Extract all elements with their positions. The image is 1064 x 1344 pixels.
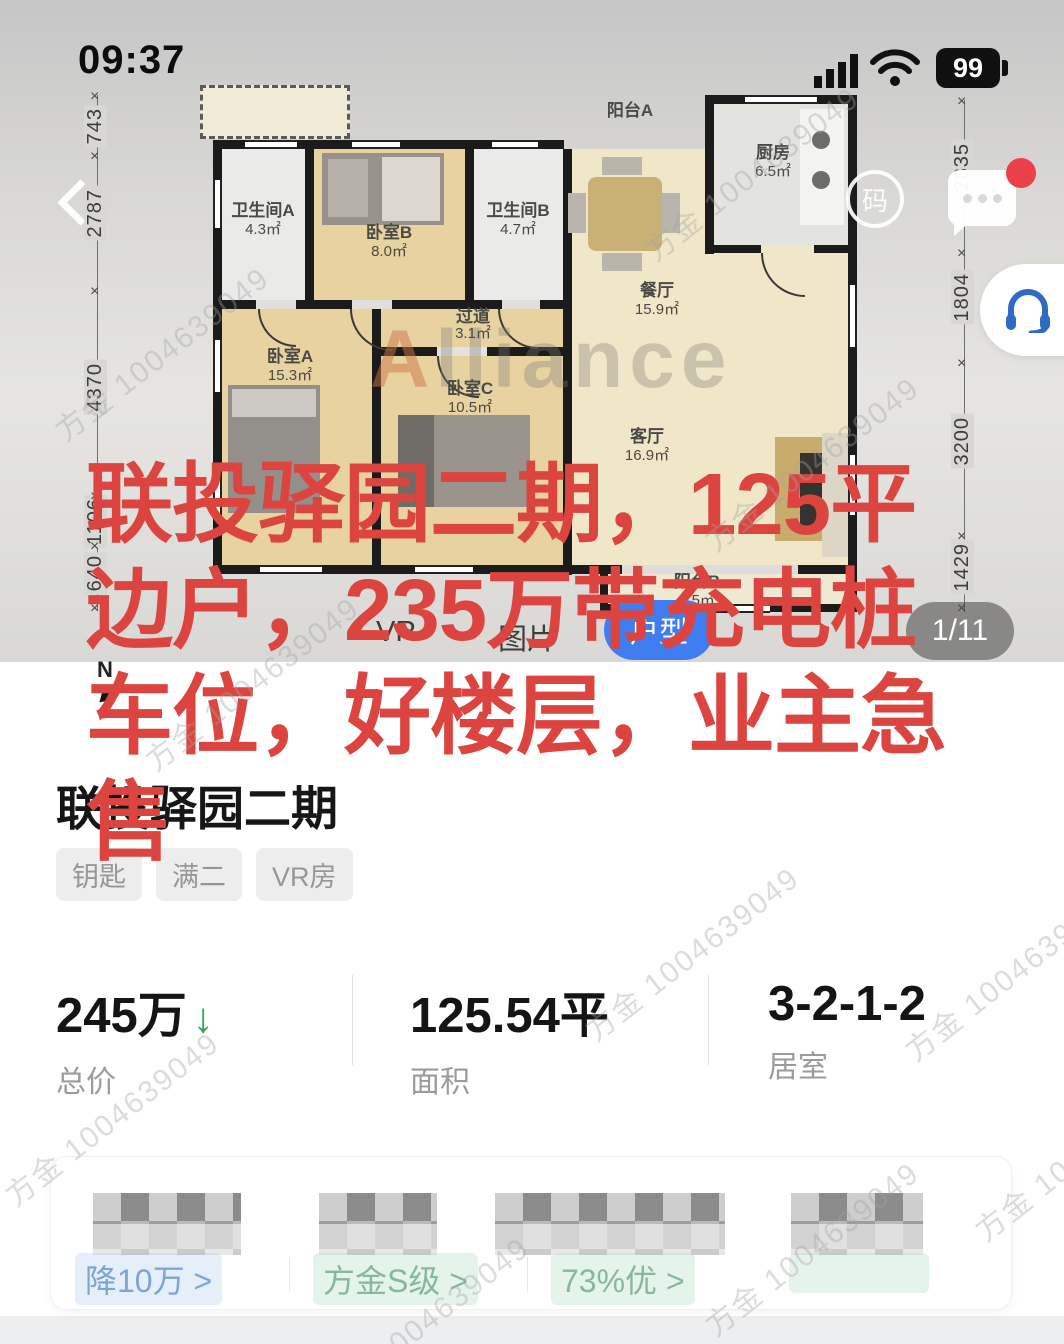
dimension-value: 1804 bbox=[951, 270, 974, 325]
room-label-bedroom-b: 卧室B8.0㎡ bbox=[334, 223, 444, 260]
promo-blank bbox=[789, 1253, 929, 1293]
wall bbox=[222, 300, 256, 309]
stat-divider bbox=[708, 975, 709, 1065]
window-marker bbox=[213, 340, 222, 392]
room-balcony-a bbox=[200, 85, 350, 139]
price-down-arrow: ↓ bbox=[193, 994, 214, 1041]
dimension-tick: × bbox=[957, 355, 966, 373]
room-label-hallway: 过道3.1㎡ bbox=[418, 308, 528, 342]
furniture-dining-table bbox=[588, 177, 662, 251]
dimension-value: 4370 bbox=[84, 360, 107, 415]
room-label-bedroom-a: 卧室A15.3㎡ bbox=[235, 347, 345, 384]
dimension-tick: × bbox=[957, 245, 966, 263]
wall bbox=[296, 300, 352, 309]
wall bbox=[705, 245, 761, 253]
promo-price-cut[interactable]: 降10万 > bbox=[75, 1253, 222, 1305]
furniture-chair bbox=[602, 253, 642, 271]
promo-grade[interactable]: 方金S级 > bbox=[313, 1253, 478, 1305]
redacted-mosaic bbox=[495, 1193, 725, 1255]
screen: 09:37 99 Alliance 阳台A 厨房6.5㎡ 卫生间A4.3㎡ 卧室… bbox=[0, 0, 1064, 1344]
promo-divider bbox=[289, 1257, 290, 1291]
stat-layout: 3-2-1-2 居室 bbox=[768, 976, 926, 1086]
furniture-pillow bbox=[232, 389, 316, 417]
furniture-bed-sheet bbox=[382, 157, 440, 221]
room-label-dining: 餐厅15.9㎡ bbox=[602, 281, 712, 318]
chat-bubble-icon[interactable] bbox=[948, 170, 1016, 226]
redacted-mosaic bbox=[319, 1193, 437, 1255]
status-time: 09:37 bbox=[78, 38, 185, 83]
furniture-pillow bbox=[328, 159, 368, 217]
window-marker bbox=[492, 140, 538, 149]
redacted-mosaic bbox=[791, 1193, 923, 1255]
cellular-signal-icon bbox=[814, 52, 862, 88]
room-label-bedroom-c: 卧室C10.5㎡ bbox=[415, 379, 525, 416]
marketing-overlay-text: 联投驿园二期，125平 边户，235万带充电桩 车位，好楼层，业主急 售 bbox=[86, 452, 1016, 876]
room-label-balcony-a: 阳台A bbox=[575, 101, 685, 121]
room-label-bath-a: 卫生间A4.3㎡ bbox=[210, 201, 316, 238]
redacted-mosaic bbox=[93, 1193, 241, 1255]
customer-service-button[interactable] bbox=[980, 264, 1064, 356]
dimension-tick: × bbox=[957, 93, 966, 111]
promo-card[interactable]: 降10万 > 方金S级 > 73%优 > bbox=[50, 1156, 1012, 1310]
headset-icon bbox=[1002, 287, 1054, 333]
chat-bubble-tail bbox=[954, 222, 970, 236]
dimension-tick: × bbox=[90, 148, 99, 166]
promo-divider bbox=[527, 1257, 528, 1291]
dimension-value: 2787 bbox=[84, 186, 107, 241]
window-marker bbox=[352, 140, 400, 149]
dimension-tick: × bbox=[90, 283, 99, 301]
room-label-kitchen: 厨房6.5㎡ bbox=[718, 143, 828, 180]
dimension-tick: × bbox=[90, 88, 99, 106]
stat-total-price: 245万↓ 总价 bbox=[56, 976, 214, 1101]
stat-divider bbox=[352, 975, 353, 1065]
dimension-value: 743 bbox=[84, 105, 107, 147]
wall bbox=[705, 104, 714, 254]
battery-nub bbox=[1002, 60, 1008, 76]
stat-area: 125.54平 面积 bbox=[410, 976, 609, 1101]
window-marker bbox=[745, 95, 817, 104]
furniture-chair bbox=[602, 157, 642, 175]
qr-code-badge[interactable]: 码 bbox=[846, 170, 904, 228]
next-card-edge bbox=[0, 1316, 1064, 1344]
battery-icon: 99 bbox=[936, 48, 1000, 88]
window-marker bbox=[245, 140, 297, 149]
room-label-bath-b: 卫生间B4.7㎡ bbox=[462, 201, 574, 238]
wall bbox=[814, 245, 857, 253]
wifi-icon bbox=[870, 48, 920, 88]
window-marker bbox=[848, 285, 857, 347]
promo-percent[interactable]: 73%优 > bbox=[551, 1253, 695, 1305]
notification-dot bbox=[1006, 158, 1036, 188]
furniture-chair bbox=[662, 193, 680, 233]
